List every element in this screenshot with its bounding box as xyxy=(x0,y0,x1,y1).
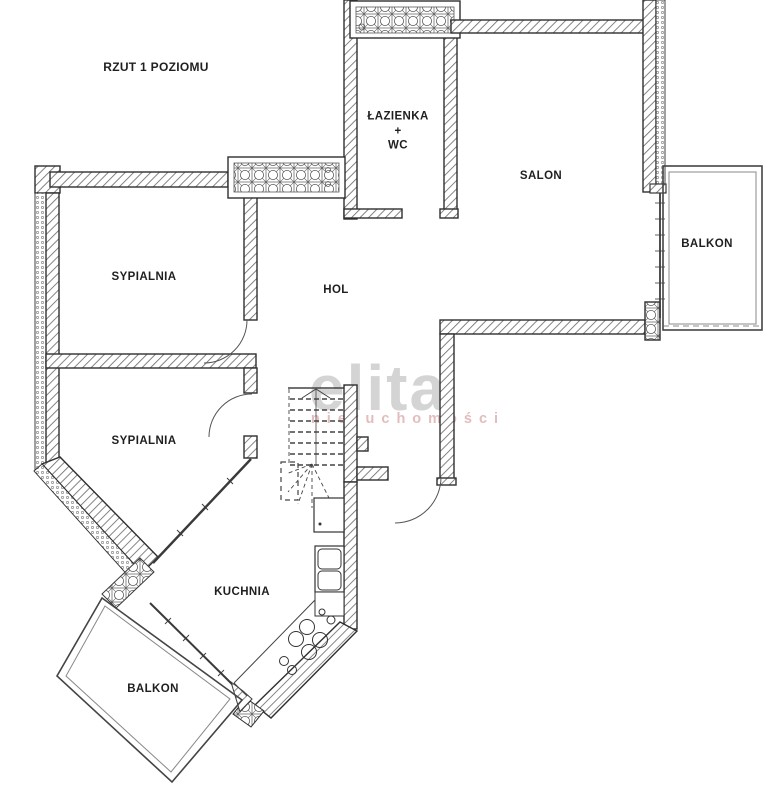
room-label-hall: HOL xyxy=(323,283,348,298)
page-title: RZUT 1 POZIOMU xyxy=(103,60,209,75)
chimney-block-top xyxy=(350,1,460,38)
kitchen-fridge xyxy=(314,498,344,532)
balcony-right-label: BALKON xyxy=(681,237,733,252)
staircase xyxy=(281,388,344,508)
hall-divider-wall xyxy=(437,334,456,485)
room-label-bathroom-line2: + xyxy=(367,124,428,139)
balcony-bottom-label: BALKON xyxy=(127,682,179,697)
bedroom2-kitchen-partition xyxy=(153,459,251,563)
room-label-bedroom-1: SYPIALNIA xyxy=(112,270,177,285)
floor-plan: elita nieruchomości xyxy=(0,0,768,797)
room-label-bathroom: ŁAZIENKA + WC xyxy=(367,109,428,153)
room-label-bedroom-2: SYPIALNIA xyxy=(112,434,177,449)
kitchen-sink xyxy=(315,546,344,616)
door-arc-bedroom-2 xyxy=(209,394,252,437)
room-label-salon: SALON xyxy=(520,169,562,184)
door-arc-kitchen xyxy=(395,477,441,523)
room-label-bathroom-line1: ŁAZIENKA xyxy=(367,109,428,124)
room-label-kitchen: KUCHNIA xyxy=(214,585,270,600)
chimney-block-left xyxy=(228,157,345,198)
bedroom-walls xyxy=(34,166,257,580)
room-label-bathroom-line3: WC xyxy=(367,138,428,153)
